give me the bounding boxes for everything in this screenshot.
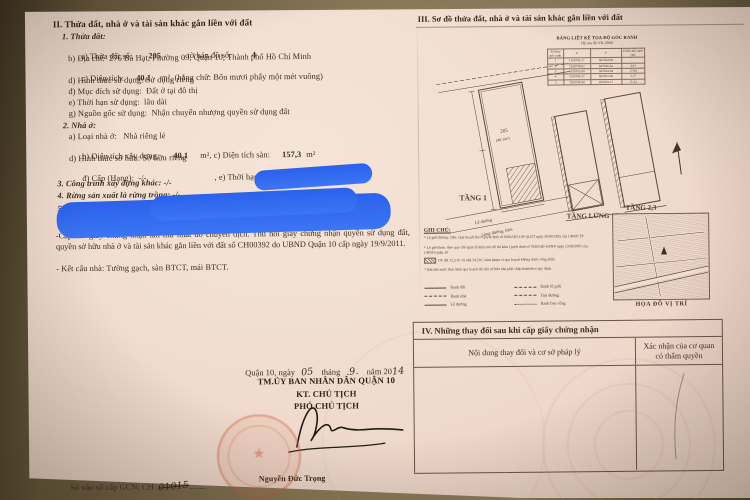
- house-ownership-line: d) Hình thức sở hữu: Sở hữu riêng: [69, 153, 187, 163]
- other-constructions-line: 3. Công trình xây dựng khác: -/-: [57, 178, 172, 188]
- signature: [284, 396, 420, 455]
- floor1-label: TẦNG 1: [459, 192, 487, 202]
- section4-table: IV. Những thay đổi sau khi cấp giấy chứn…: [413, 319, 724, 474]
- solid-line-sample: [425, 304, 447, 305]
- legend-item: Ranh ban công: [514, 300, 604, 306]
- location-map: [612, 212, 711, 301]
- solid-line-sample: [424, 287, 446, 288]
- ghi-chu-heading: GHI CHÚ:: [424, 228, 451, 234]
- hatch-swatch: [424, 258, 436, 264]
- stamp-star-icon: ★: [217, 444, 301, 464]
- planning-zone-hatch: [506, 163, 541, 204]
- house-heading: 2. Nhà ở:: [63, 121, 96, 130]
- map-legend: Ranh đất Ranh lộ giới Ranh nhà Tim đường…: [424, 283, 604, 307]
- legend-item: Tim đường: [514, 292, 604, 298]
- alley-boundary-line: [438, 71, 570, 92]
- floor23-plan: [601, 92, 660, 207]
- use-purpose-line: đ) Mục đích sử dụng: Đất ở tại đô thị: [68, 86, 197, 96]
- dotted-line-sample: [515, 303, 537, 304]
- handwritten-book-number: 01015: [157, 480, 189, 494]
- mezzanine-plan: [551, 111, 603, 212]
- section4-empty-body: [414, 365, 723, 472]
- legend-item: Ranh lộ giới: [514, 283, 604, 289]
- parcel-heading: 1. Thửa đất:: [62, 32, 106, 41]
- ghi-chu-note: * Lộ giới hẻm: theo quy chế quản lý kiến…: [424, 244, 596, 255]
- use-form-line: d) Hình thức sử dụng: Sử dụng riêng: [68, 75, 194, 85]
- alley-boundary-line: [436, 63, 568, 84]
- certificate-photo: II. Thửa đất, nhà ở và tài sản khác gắn …: [0, 0, 750, 500]
- use-term-line: e) Thời hạn sử dụng: lâu dài: [69, 97, 168, 107]
- parcel-number-text: 205: [500, 128, 509, 134]
- section4-column-divider: [635, 366, 637, 470]
- house-type-line: a) Loại nhà ở: Nhà riêng lẻ: [69, 131, 166, 141]
- section2-title: II. Thửa đất, nhà ở và tài sản khác gắn …: [53, 17, 253, 29]
- location-map-label: HỌA ĐỒ VỊ TRÍ: [613, 301, 711, 308]
- section4-header-row: Nội dung thay đổi và cơ sở pháp lý Xác n…: [414, 337, 722, 368]
- north-arrow-icon: [672, 142, 681, 174]
- use-origin-line: g) Nguồn gốc sử dụng: Nhận chuyển nhượng…: [69, 107, 290, 118]
- sidewalk-label: Lề đường: [474, 217, 494, 225]
- structure-note-line: - Kết cấu nhà: Tường gạch, sàn BTCT, mái…: [56, 263, 229, 274]
- mezzanine-label: TẦNG LỬNG: [567, 212, 610, 220]
- parcel-area-text: (40,1m²): [495, 135, 510, 144]
- coord-table-subtitle: Hệ tọa độ VN-2000: [536, 41, 658, 46]
- dashed-line-sample: [424, 296, 446, 297]
- section3-underline: [416, 24, 744, 28]
- stray-pen-mark: [662, 371, 689, 463]
- section3-title: III. Sơ đồ thửa đất, nhà ở và tài sản kh…: [418, 13, 623, 24]
- section4-col2-header: Xác nhận của cơ quan có thẩm quyền: [636, 337, 722, 365]
- book-entry-line: Số vào sổ cấp GCN: CH01015........: [57, 472, 206, 500]
- dashdot-line-sample: [514, 295, 536, 296]
- legend-item: Ranh đất: [424, 284, 514, 290]
- dashdot-line-sample: [514, 286, 536, 287]
- legend-item: Ranh nhà: [424, 292, 514, 298]
- certificate-content: II. Thửa đất, nhà ở và tài sản khác gắn …: [0, 0, 750, 500]
- legend-item: Lề đường: [424, 301, 514, 307]
- issuing-authority-line: TM.ỦY BAN NHÂN DÂN QUẬN 10: [236, 375, 416, 387]
- official-stamp: ★: [217, 414, 302, 499]
- section4-col1-header: Nội dung thay đổi và cơ sở pháp lý: [414, 338, 636, 367]
- address-line: b) Địa chỉ: 276 Bà Hạt, Phường 09, Quận …: [68, 52, 311, 63]
